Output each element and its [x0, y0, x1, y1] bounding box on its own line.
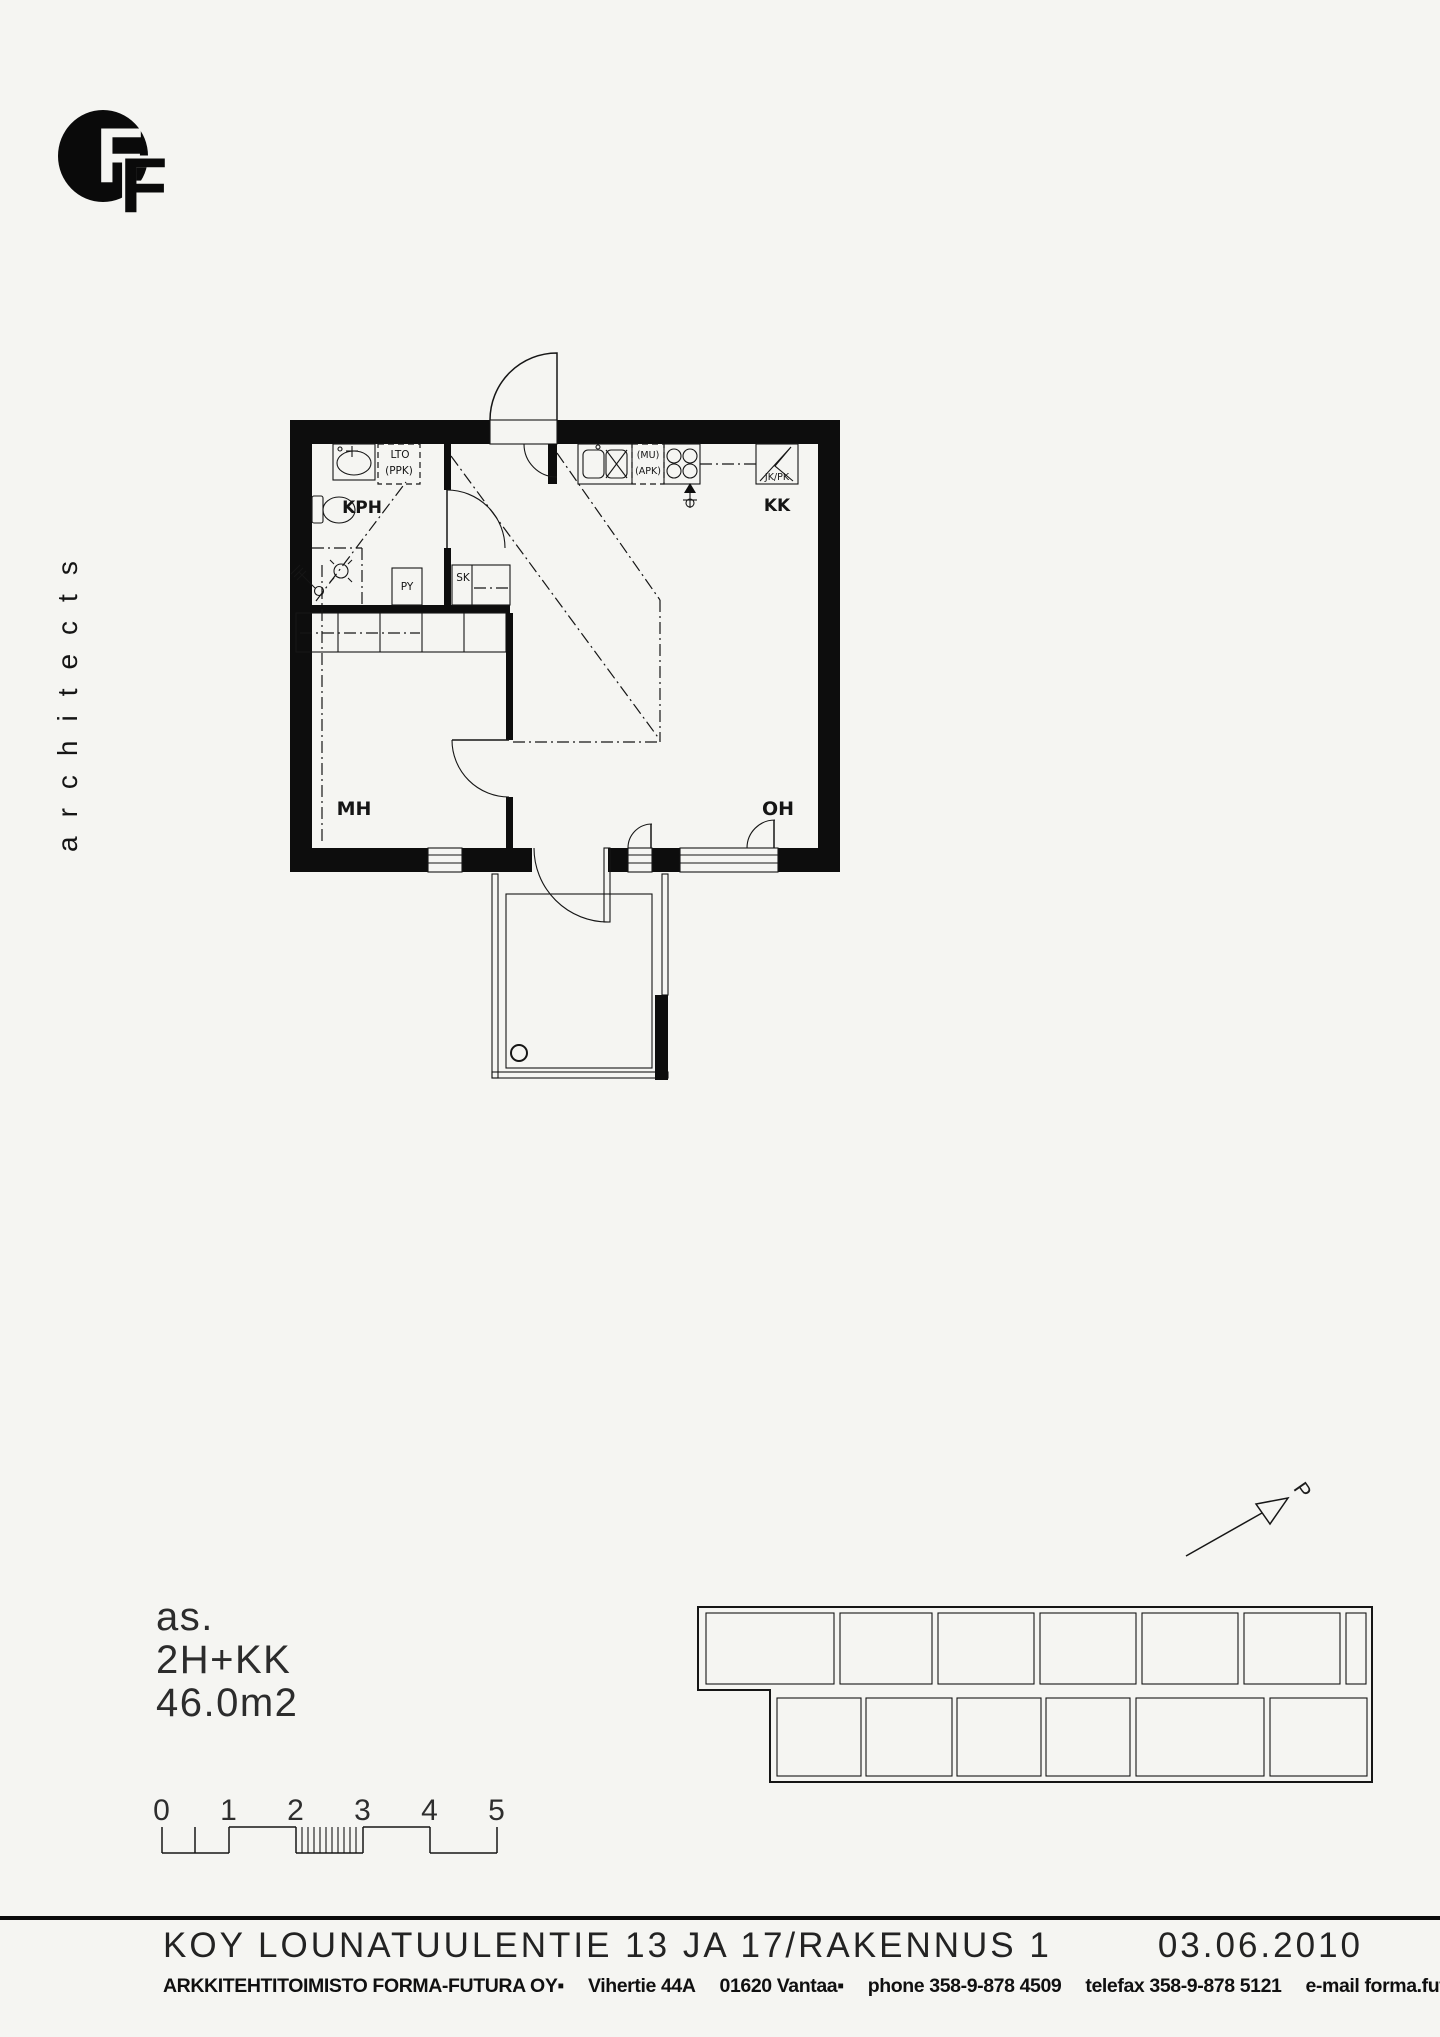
balcony-door — [534, 848, 610, 922]
scale-bar-hatch — [302, 1827, 356, 1853]
kitchen: (MU) (APK) JK/PK KK — [578, 444, 798, 516]
entrance-door — [490, 353, 557, 484]
plan-drawing: LTO (PPK) — [0, 0, 1440, 2037]
window-living-small — [628, 824, 652, 872]
window-living-large — [680, 820, 778, 872]
label-apk: (APK) — [635, 466, 661, 477]
label-living-room: OH — [762, 798, 794, 820]
label-lto: LTO — [390, 449, 409, 461]
drawing-sheet: { "page": { "paper_color": "#f5f5f2", "i… — [0, 0, 1440, 2037]
scale-num-1: 1 — [220, 1794, 238, 1827]
label-ppk: (PPK) — [385, 465, 413, 477]
key-plan-upper-units — [706, 1613, 1366, 1684]
wardrobes — [296, 613, 506, 652]
kitchen-sink — [578, 444, 632, 484]
floor-drain-icon — [683, 483, 697, 508]
label-sk: SK — [456, 572, 471, 584]
scale-num-0: 0 — [153, 1794, 171, 1827]
highlighted-unit — [866, 1698, 952, 1776]
washer-reservation: LTO (PPK) — [378, 444, 420, 484]
bedroom-partition — [452, 613, 513, 848]
floor-plan: LTO (PPK) — [290, 353, 840, 1080]
balcony — [492, 848, 668, 1080]
scale-num-4: 4 — [421, 1794, 439, 1827]
scale-num-5: 5 — [488, 1794, 506, 1827]
scale-num-3: 3 — [354, 1794, 372, 1827]
bathroom-door-arc — [447, 490, 505, 548]
label-py: PY — [401, 581, 414, 593]
fridge-freezer: JK/PK — [756, 444, 798, 484]
scale-bar-graphic — [162, 1827, 497, 1853]
label-jkpk: JK/PK — [764, 472, 790, 483]
window-bedroom — [428, 848, 462, 872]
label-bathroom: KPH — [342, 498, 382, 518]
north-arrow: P — [1186, 1478, 1315, 1556]
site-key-plan — [698, 1607, 1372, 1782]
stove — [664, 444, 700, 484]
appliance-reservations: (MU) (APK) — [632, 444, 664, 484]
bathroom-sink — [333, 444, 375, 480]
north-label: P — [1289, 1478, 1316, 1503]
label-bedroom: MH — [337, 798, 372, 820]
label-mu: (MU) — [637, 450, 660, 461]
exterior-walls — [290, 420, 840, 872]
scale-bar: 0 1 2 3 4 5 — [153, 1794, 506, 1853]
bedroom-door-arc — [452, 740, 509, 797]
scale-num-2: 2 — [287, 1794, 305, 1827]
key-plan-lower-units — [777, 1698, 1367, 1776]
label-kitchen: KK — [764, 496, 791, 516]
balcony-drain-icon — [511, 1045, 527, 1061]
